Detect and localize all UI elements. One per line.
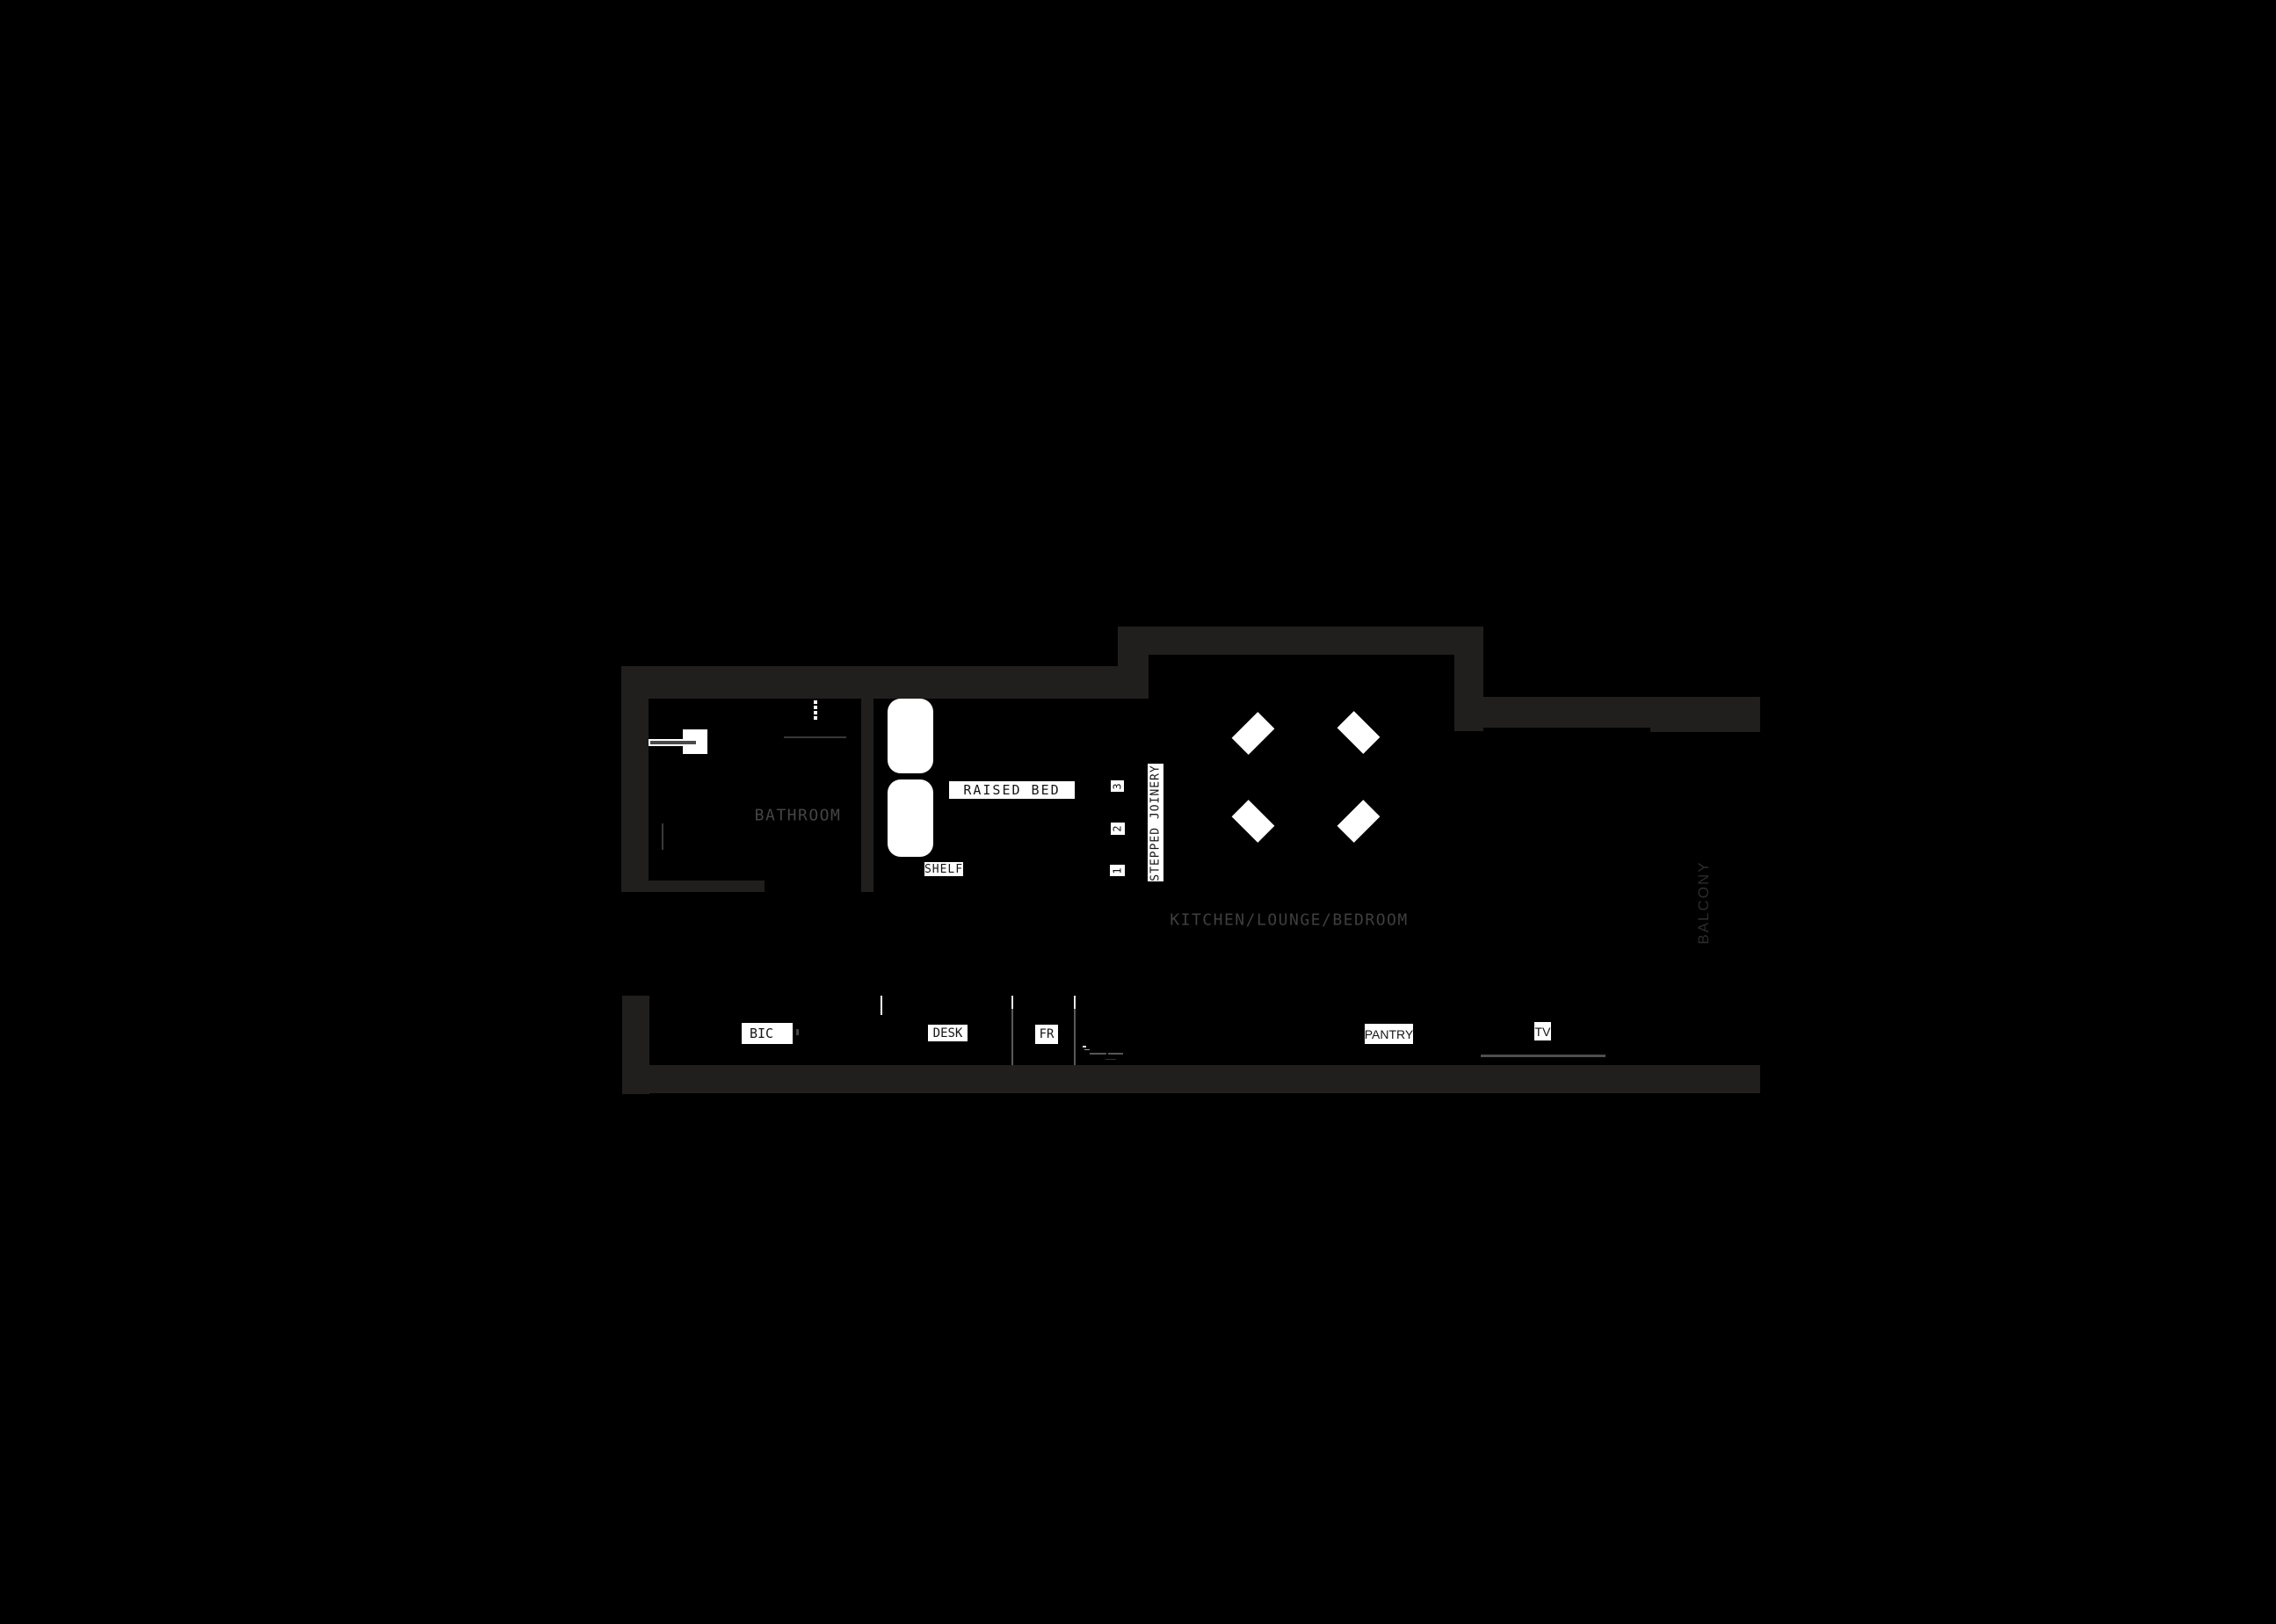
counter-mark-dot — [1083, 1046, 1086, 1048]
stepped-joinery-text: STEPPED JOINERY — [1150, 765, 1162, 881]
shower-screen-dash-1 — [814, 700, 817, 704]
step-3-text: 3 — [1112, 783, 1122, 789]
desk-label: DESK — [928, 1025, 968, 1041]
shower-screen-dash-3 — [814, 711, 817, 714]
bathroom-room-label: BATHROOM — [755, 807, 842, 825]
wall-top-kitchen — [1118, 627, 1483, 655]
chair-bottom-right — [1337, 800, 1381, 843]
bic-label: BIC — [742, 1023, 793, 1044]
stepped-joinery-label: STEPPED JOINERY — [1148, 764, 1163, 881]
floor-plan: RAISED BED SHELF 3 2 1 STEPPED JOINERY B… — [0, 0, 2276, 1624]
bed-cushion-lower — [888, 779, 933, 857]
tv-unit-line — [1481, 1055, 1606, 1057]
shelf-label-text: SHELF — [924, 864, 963, 875]
wall-bathroom-bed-divider — [861, 666, 873, 892]
strip-divider-door-line — [881, 996, 882, 1015]
strip-divider-2-tick — [1074, 996, 1076, 1009]
wall-step-connector-right — [1454, 627, 1483, 731]
chair-top-right — [1337, 711, 1381, 754]
strip-divider-1 — [1011, 1009, 1013, 1065]
shower-arm-fixture — [649, 739, 698, 746]
fridge-label: FR — [1035, 1025, 1058, 1044]
shelf-label: SHELF — [924, 862, 963, 876]
chair-bottom-left — [1232, 800, 1275, 843]
counter-mark-line-1 — [1090, 1053, 1106, 1055]
raised-bed-label: RAISED BED — [949, 781, 1075, 799]
desk-label-text: DESK — [933, 1027, 963, 1040]
strip-divider-1-tick — [1011, 996, 1013, 1009]
bathroom-faint-line-v — [662, 823, 663, 850]
bic-label-text: BIC — [750, 1027, 773, 1040]
strip-divider-2 — [1074, 1009, 1076, 1065]
wall-top-right-2 — [1650, 697, 1760, 732]
pantry-label-text: PANTRY — [1365, 1028, 1414, 1040]
step-1-label: 1 — [1110, 865, 1125, 876]
pantry-label: PANTRY — [1365, 1024, 1413, 1044]
counter-mark-line-2 — [1108, 1053, 1123, 1055]
kitchen-lounge-bedroom-room-label: KITCHEN/LOUNGE/BEDROOM — [1170, 911, 1408, 930]
step-2-text: 2 — [1113, 825, 1123, 831]
fridge-label-text: FR — [1040, 1028, 1055, 1040]
shower-screen-dash-4 — [814, 716, 817, 720]
wall-bathroom-bottom — [649, 881, 765, 892]
counter-mark-dash — [1084, 1049, 1090, 1050]
step-3-label: 3 — [1111, 780, 1124, 792]
step-1-text: 1 — [1112, 867, 1122, 874]
wall-bathroom-left — [621, 666, 649, 892]
bic-faint-mark — [796, 1029, 799, 1035]
bed-cushion-upper — [888, 699, 933, 773]
raised-bed-label-text: RAISED BED — [963, 784, 1060, 797]
bathroom-faint-line-h — [784, 736, 846, 738]
balcony-room-label-text: BALCONY — [1695, 860, 1713, 944]
chair-top-left — [1232, 712, 1275, 755]
counter-mark-line-3 — [1105, 1059, 1116, 1060]
balcony-room-label: BALCONY — [1704, 903, 1787, 920]
tv-label: TV — [1534, 1022, 1551, 1040]
step-2-label: 2 — [1111, 823, 1125, 835]
wall-top-right-1 — [1483, 697, 1650, 728]
wall-bottom — [622, 1065, 1760, 1093]
tv-label-text: TV — [1535, 1026, 1551, 1038]
shower-screen-dash-2 — [814, 706, 817, 709]
